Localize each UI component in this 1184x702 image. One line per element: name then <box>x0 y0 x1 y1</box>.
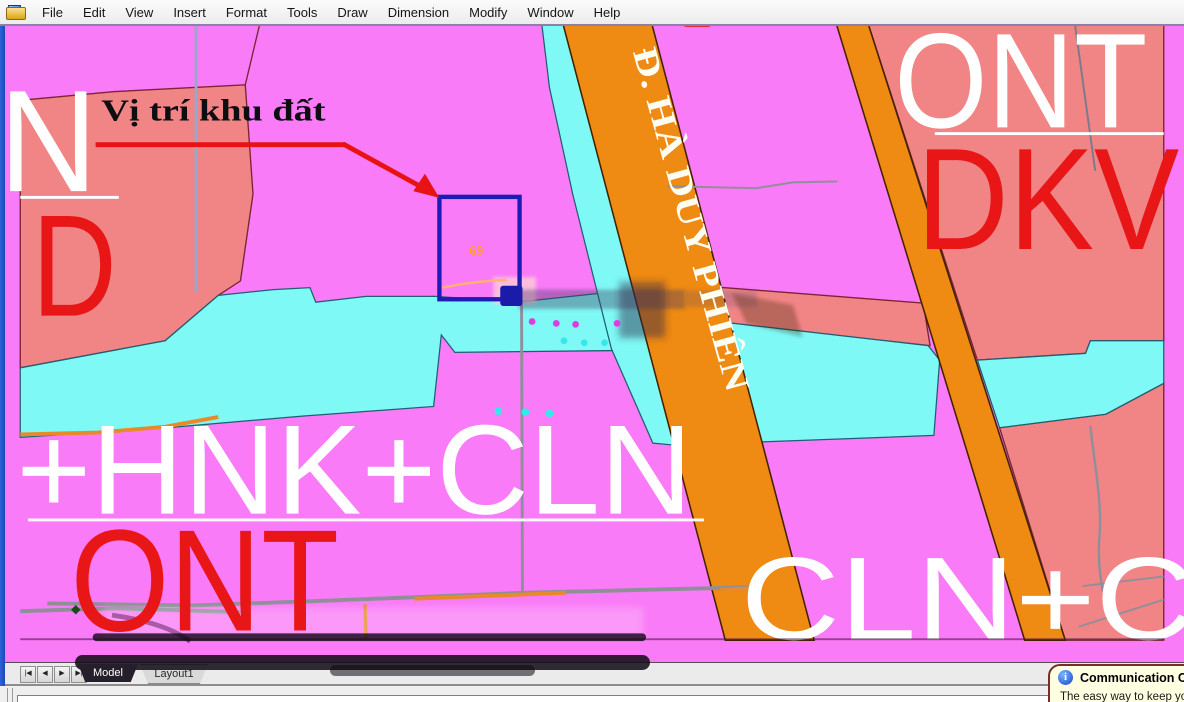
menu-view[interactable]: View <box>115 2 163 23</box>
popup-title: Communication Cen <box>1080 671 1184 685</box>
plot-number-label: 69 <box>469 244 483 258</box>
menu-draw[interactable]: Draw <box>327 2 377 23</box>
annotation-label: Vị trí khu đất <box>101 93 326 128</box>
info-icon: i <box>1058 670 1073 685</box>
menu-file[interactable]: File <box>32 2 73 23</box>
menu-insert[interactable]: Insert <box>163 2 216 23</box>
window-left-border <box>0 24 5 686</box>
dark-smudge <box>93 633 646 641</box>
zone-label-dkv: DKV <box>917 118 1180 280</box>
command-bar <box>0 684 1184 702</box>
menu-tools[interactable]: Tools <box>277 2 327 23</box>
map-canvas[interactable]: 69 N D ONT DKV +HNK+CLN ONT CLN+C Đ. HÀ … <box>0 24 1184 702</box>
zone-label-d: D <box>32 185 117 347</box>
tab-nav-buttons: |◀ ◀ ▶ ▶| <box>20 666 87 683</box>
menu-window[interactable]: Window <box>517 2 583 23</box>
layout-tab-bar: |◀ ◀ ▶ ▶| Model Layout1 <box>0 662 1184 685</box>
tab-nav-prev-button[interactable]: ◀ <box>37 666 53 683</box>
tab-nav-first-button[interactable]: |◀ <box>20 666 36 683</box>
menu-format[interactable]: Format <box>216 2 277 23</box>
command-line-input[interactable] <box>17 695 1184 702</box>
tab-model[interactable]: Model <box>78 664 138 682</box>
app-logo-icon <box>6 5 24 20</box>
zone-label-cln-c: CLN+C <box>741 532 1184 664</box>
application-window: File Edit View Insert Format Tools Draw … <box>0 0 1184 702</box>
menu-help[interactable]: Help <box>584 2 631 23</box>
smudge-overlay-2 <box>330 665 535 676</box>
popup-body: The easy way to keep you <box>1060 691 1184 702</box>
command-bar-grip[interactable] <box>7 688 13 702</box>
communication-center-popup[interactable]: i Communication Cen The easy way to keep… <box>1048 664 1184 702</box>
menu-dimension[interactable]: Dimension <box>378 2 459 23</box>
menu-modify[interactable]: Modify <box>459 2 517 23</box>
tab-nav-next-button[interactable]: ▶ <box>54 666 70 683</box>
plot-corner-node[interactable] <box>500 286 522 306</box>
menu-edit[interactable]: Edit <box>73 2 115 23</box>
menu-bar: File Edit View Insert Format Tools Draw … <box>0 0 1184 26</box>
